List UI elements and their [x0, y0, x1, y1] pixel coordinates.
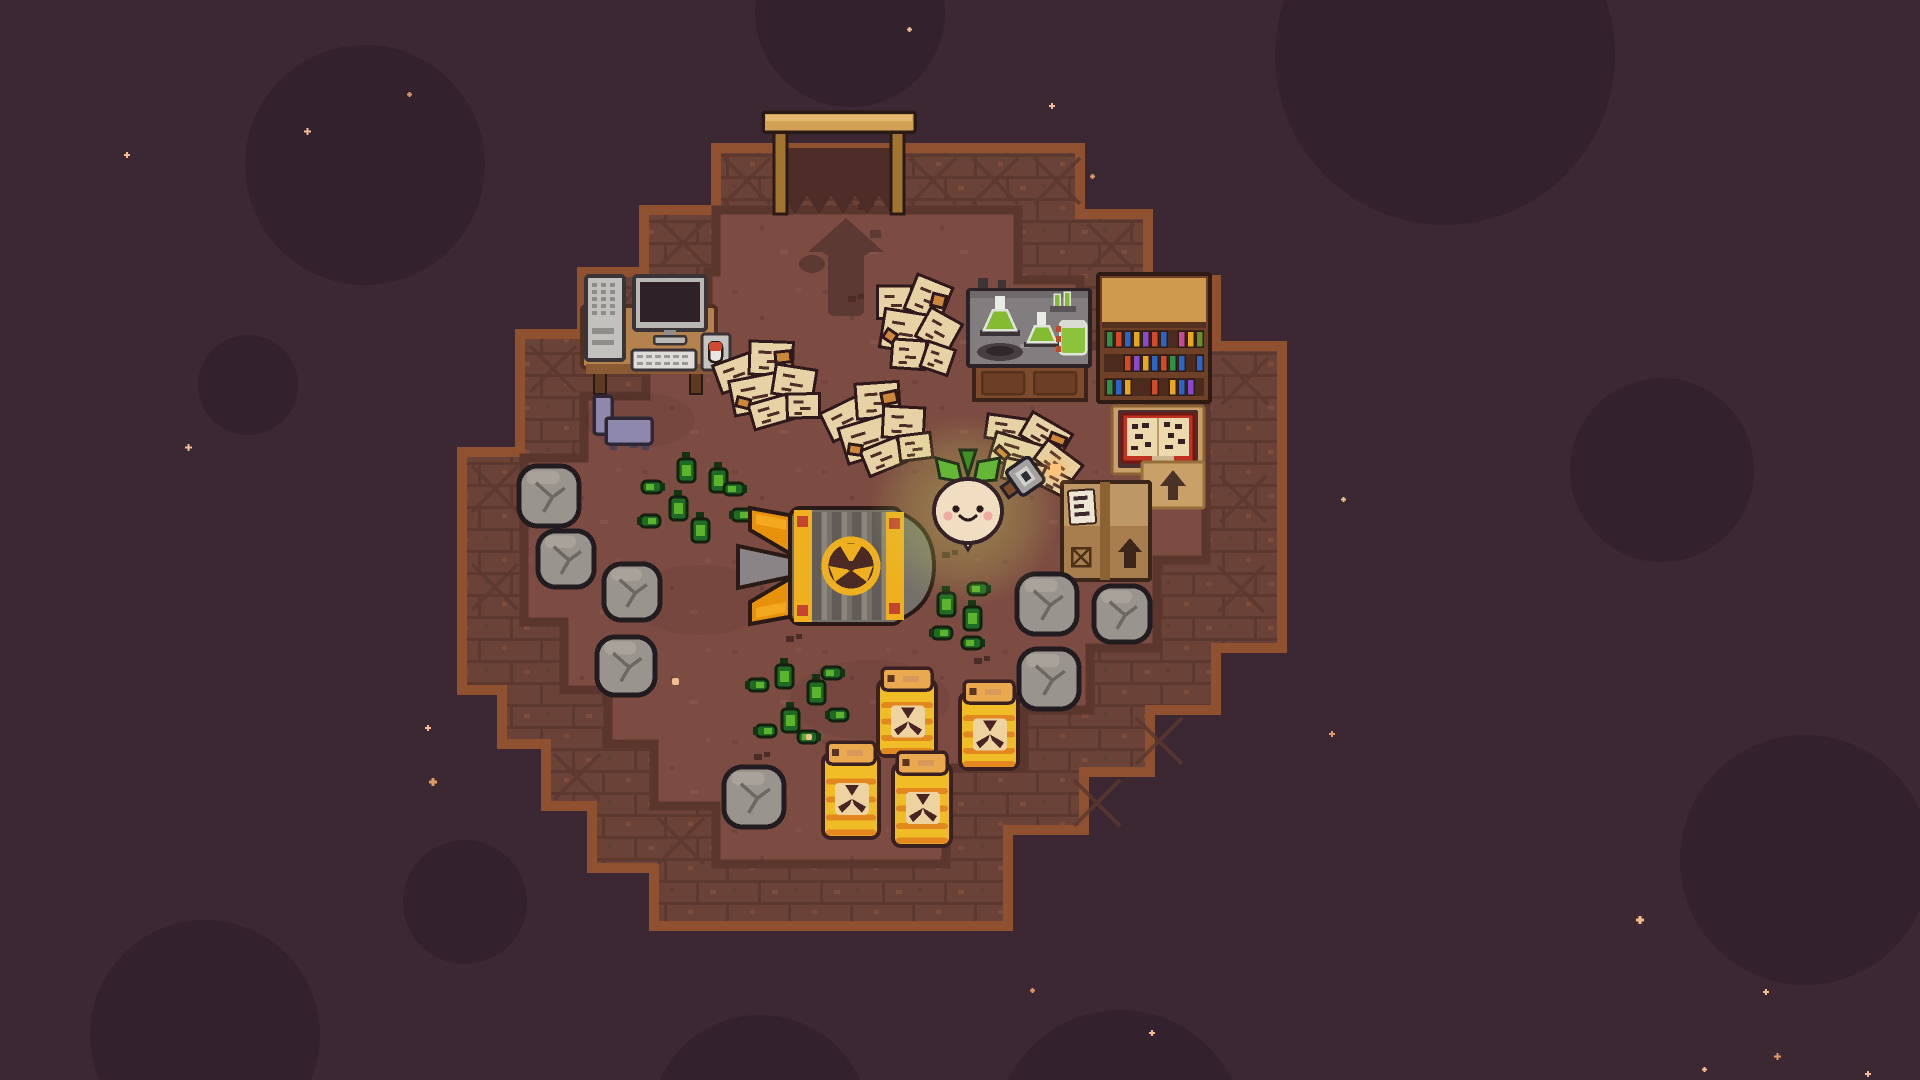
glass-bottle [825, 709, 848, 721]
pc-tower[interactable] [586, 276, 624, 360]
radioactive-barrel[interactable] [958, 679, 1022, 773]
glass-bottle [637, 515, 660, 527]
glass-bottle [782, 702, 799, 732]
desk-chair[interactable] [592, 394, 660, 452]
radiation-symbol-icon [973, 718, 1007, 750]
floor-debris [786, 634, 802, 644]
floor-debris [974, 656, 988, 666]
turnip-character[interactable] [916, 448, 1032, 552]
ember-sparkle [1050, 464, 1061, 475]
floor-debris [848, 294, 866, 306]
glass-bottle [745, 679, 768, 691]
rock[interactable] [535, 528, 597, 590]
turnip-body [934, 479, 1002, 550]
bottle-cluster[interactable] [638, 450, 752, 544]
monitor-screen [640, 282, 700, 322]
floor-debris [754, 752, 770, 762]
paper-pile[interactable] [716, 342, 824, 434]
glass-bottle [929, 627, 952, 639]
glass-bottle [962, 637, 985, 649]
rock[interactable] [1016, 646, 1082, 712]
radiation-symbol-icon [835, 783, 869, 815]
radiation-symbol-icon [891, 705, 925, 737]
rock[interactable] [594, 634, 658, 698]
glass-bottle [822, 667, 845, 679]
dust-sparkle [672, 678, 679, 685]
shipping-label [1068, 489, 1096, 525]
glass-bottle [753, 725, 776, 737]
game-viewport[interactable] [0, 0, 1920, 1080]
rock[interactable] [601, 561, 663, 623]
paper-pile[interactable] [870, 278, 964, 380]
glass-bottle [692, 512, 709, 542]
glass-bottle [724, 483, 747, 495]
cardboard-box[interactable] [1062, 476, 1154, 582]
rock[interactable] [516, 463, 582, 529]
computer-desk[interactable] [582, 276, 732, 396]
glass-bottle [678, 452, 695, 482]
radiation-symbol-icon [906, 792, 940, 824]
exit-door-frame[interactable] [762, 108, 918, 216]
dust-sparkle [806, 734, 812, 740]
bookshelf[interactable] [1098, 274, 1214, 406]
open-book[interactable] [1122, 414, 1194, 462]
entities-layer [0, 0, 1920, 1080]
glass-bottle [776, 658, 793, 688]
radioactive-barrel[interactable] [821, 740, 883, 842]
rock[interactable] [721, 764, 787, 830]
radioactive-barrel[interactable] [891, 750, 955, 850]
keyboard[interactable] [632, 350, 696, 370]
rock[interactable] [1091, 583, 1153, 645]
specimen-jar[interactable] [1056, 320, 1086, 354]
glass-bottle [642, 481, 665, 493]
chemistry-station[interactable] [968, 278, 1094, 402]
glass-bottle [670, 490, 687, 520]
radioactive-barrel[interactable] [876, 666, 940, 760]
